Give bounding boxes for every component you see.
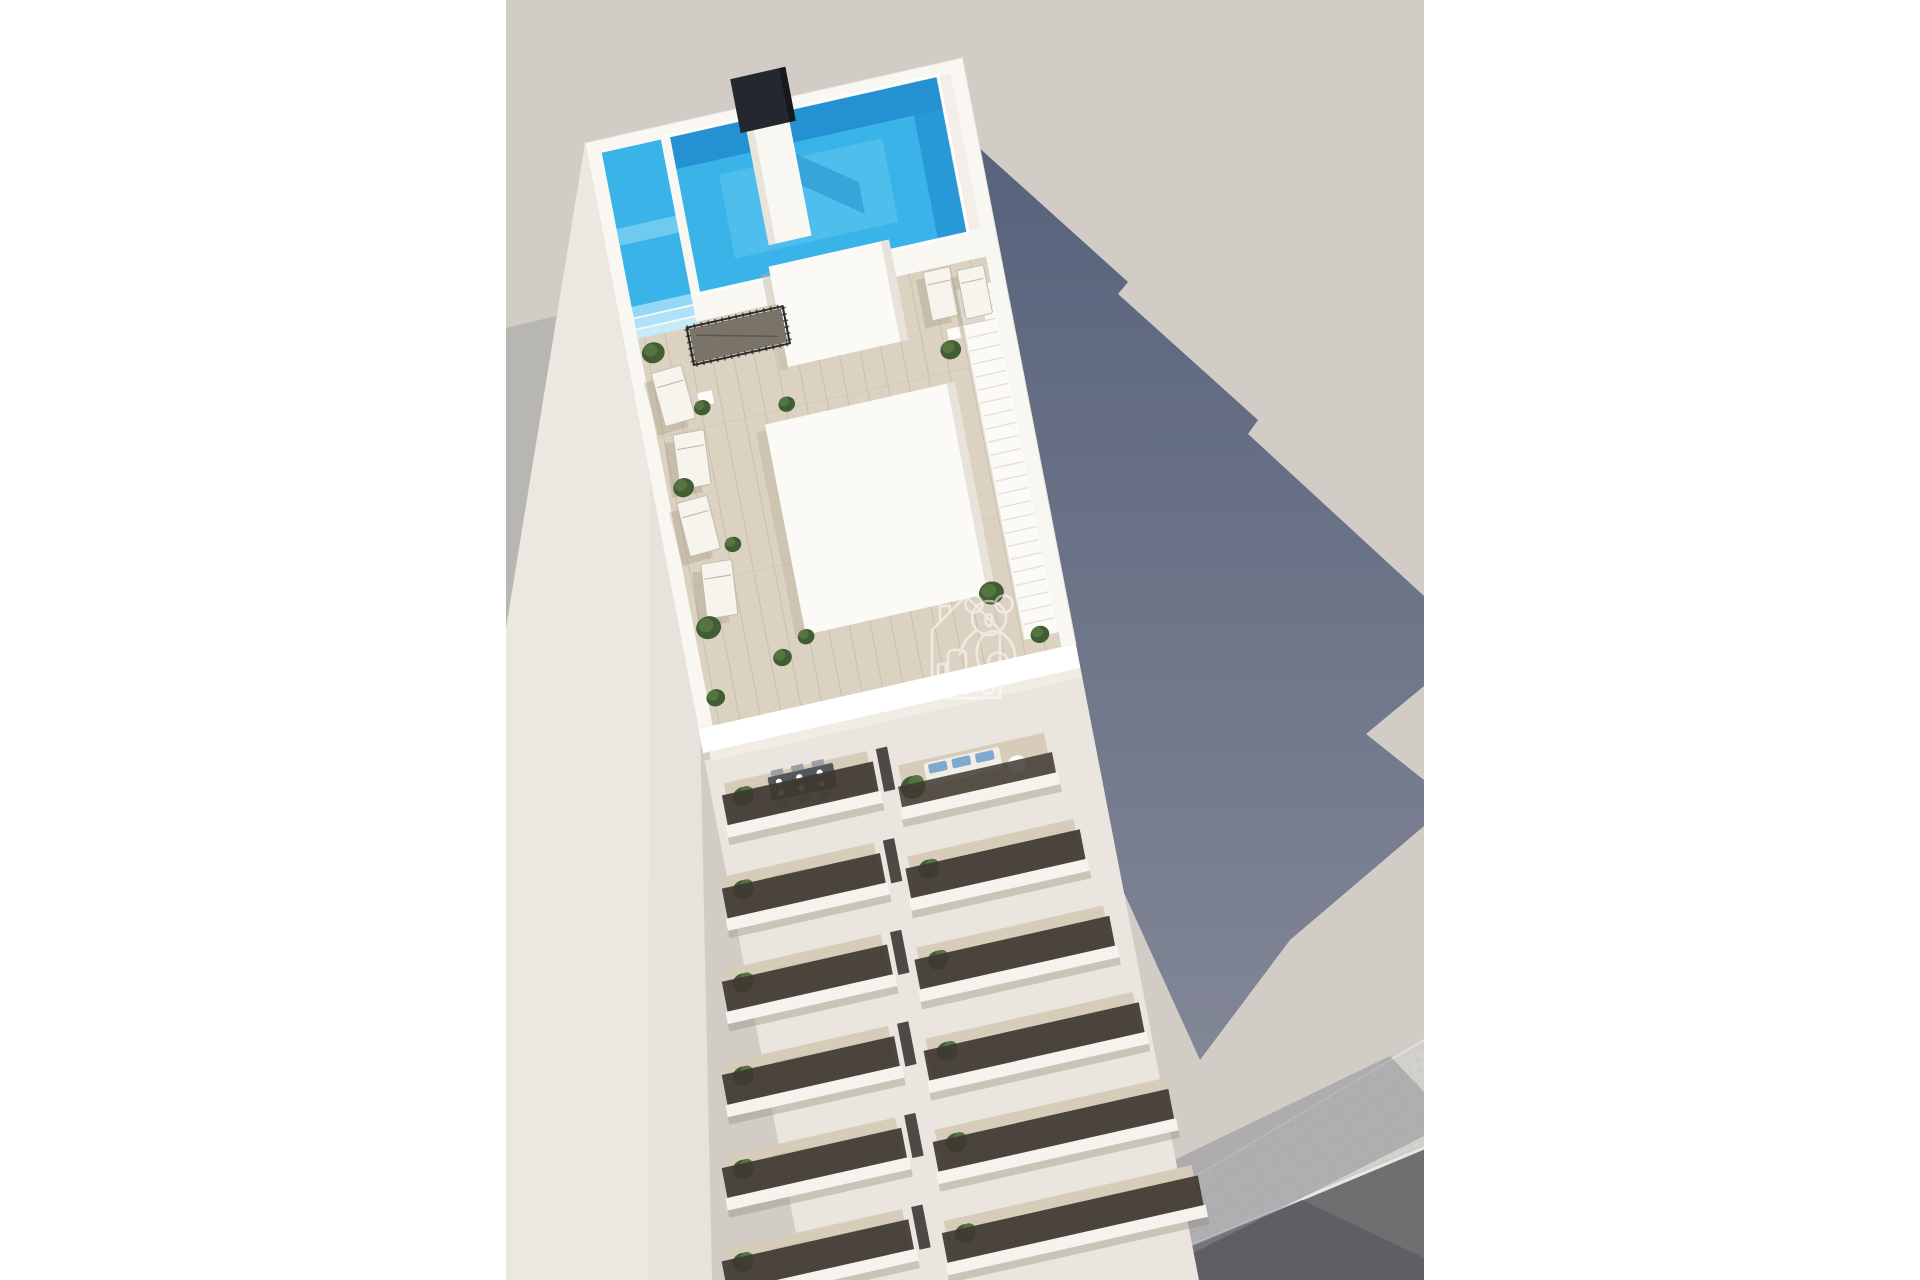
- render-svg: [506, 0, 1424, 1280]
- render-image: [506, 0, 1424, 1280]
- lounger-bed: [701, 559, 738, 619]
- page: [0, 0, 1920, 1280]
